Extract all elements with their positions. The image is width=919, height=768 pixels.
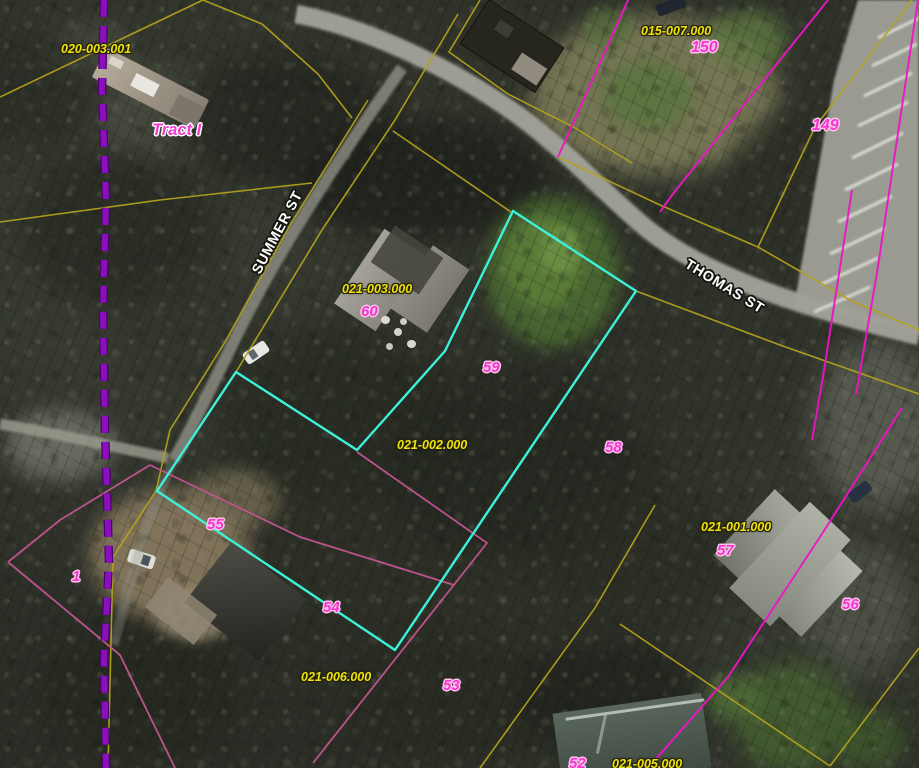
parcel-id-label: 021-005.000	[612, 758, 682, 768]
tract-label: Tract I	[152, 122, 201, 139]
parcel-number-label: 56	[842, 597, 859, 612]
street-label-summer-st: SUMMER ST	[250, 189, 306, 277]
parcel-id-label: 021-001.000	[701, 521, 771, 534]
parcel-id-label: 021-002.000	[397, 439, 467, 452]
parcel-number-label: 55	[207, 517, 224, 532]
parcel-number-label: 54	[323, 600, 340, 615]
parcel-id-label: 021-003.000	[342, 283, 412, 296]
parcel-number-label: 150	[691, 40, 718, 56]
parcel-number-label: 149	[812, 118, 839, 134]
parcel-number-label: 58	[605, 440, 622, 455]
map-labels: 020-003.001 Tract I 015-007.000 150 149 …	[0, 0, 919, 768]
parcel-number-label: 57	[717, 543, 734, 558]
map-canvas[interactable]: 020-003.001 Tract I 015-007.000 150 149 …	[0, 0, 919, 768]
parcel-number-label: 60	[361, 304, 378, 319]
parcel-id-label: 015-007.000	[641, 25, 711, 38]
parcel-number-label: 1	[72, 569, 80, 584]
parcel-id-label: 021-006.000	[301, 671, 371, 684]
street-label-thomas-st: THOMAS ST	[682, 257, 766, 316]
parcel-id-label: 020-003.001	[61, 43, 131, 56]
parcel-number-label: 59	[483, 360, 500, 375]
parcel-number-label: 53	[443, 678, 460, 693]
parcel-number-label: 52	[569, 756, 586, 768]
